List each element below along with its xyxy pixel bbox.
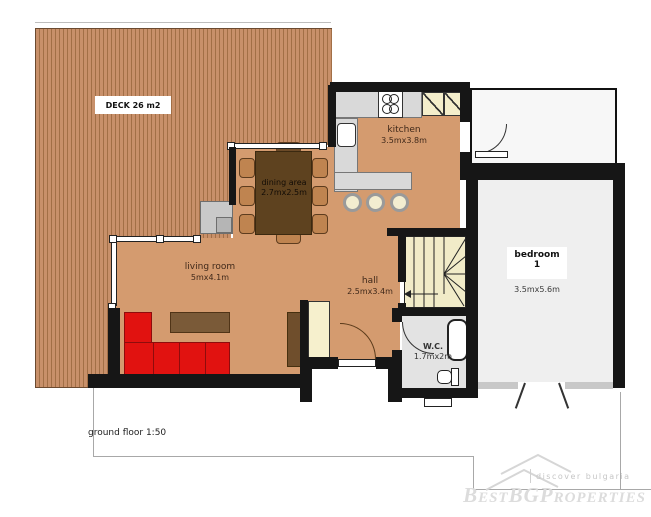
- deck-area: [35, 238, 113, 388]
- window-post: [109, 235, 117, 243]
- sofa: [124, 342, 230, 375]
- sink-icon: [337, 123, 356, 147]
- wall: [300, 357, 312, 402]
- kitchen-counter: [334, 90, 380, 118]
- toilet-icon: [451, 368, 459, 386]
- toilet-icon: [437, 370, 452, 384]
- wall: [396, 308, 466, 316]
- dining-chair: [312, 214, 328, 234]
- wall: [460, 163, 625, 180]
- wall: [108, 308, 120, 376]
- living-room-label: living room 5mx4.1m: [160, 262, 260, 283]
- dining-chair: [239, 214, 255, 234]
- bedroom-number: 1: [507, 260, 567, 270]
- wall: [398, 230, 406, 282]
- staircase-treads: [404, 236, 466, 308]
- wall: [613, 180, 625, 388]
- corner-cabinet: [422, 92, 444, 116]
- door-leaf: [308, 301, 330, 361]
- wall: [328, 85, 336, 147]
- kitchen-label: kitchen 3.5mx3.8m: [368, 125, 440, 146]
- door-sill: [475, 151, 508, 158]
- terrace-outline-bottom: [93, 456, 474, 457]
- dining-label: dining area 2.7mx2.5m: [250, 178, 318, 198]
- hall-label: hall 2.5mx3.4m: [340, 276, 400, 297]
- wall: [392, 388, 478, 398]
- deck-label-text: DECK 26 m2: [106, 101, 161, 110]
- bedroom-sill: [565, 382, 613, 389]
- watermark-divider: [530, 469, 531, 483]
- entry-threshold: [338, 359, 376, 367]
- window-post: [319, 142, 327, 150]
- bedroom-label: bedroom: [507, 247, 567, 260]
- pergola-edge-line: [35, 22, 331, 23]
- floor-plan: DECK 26 m2 bedroom 1: [0, 0, 651, 517]
- bedroom-label-box: bedroom 1: [507, 247, 567, 279]
- wall: [330, 82, 470, 92]
- plan-scale-caption: ground floor 1:50: [88, 428, 166, 438]
- window-post: [156, 235, 164, 243]
- window-dining-deck: [233, 143, 323, 149]
- bar-stool: [343, 193, 362, 212]
- dining-chair: [239, 158, 255, 178]
- window-post: [193, 235, 201, 243]
- stair-direction-arrow: [404, 290, 411, 298]
- kitchen-counter: [402, 90, 422, 118]
- window-living-left: [111, 242, 117, 306]
- stove-icon: [378, 90, 403, 118]
- watermark-tagline: discover bulgaria: [536, 472, 631, 481]
- deck-area: [35, 28, 332, 145]
- deck-label: DECK 26 m2: [95, 96, 171, 114]
- wall: [312, 357, 338, 369]
- wc-step: [424, 398, 452, 407]
- bar-stool: [366, 193, 385, 212]
- bar-counter: [334, 172, 412, 190]
- fireplace-box-inner: [216, 217, 232, 233]
- wall: [460, 82, 470, 122]
- watermark-brand: BestBGProperties: [458, 483, 651, 508]
- bedroom-dims: 3.5mx5.6m: [507, 285, 567, 294]
- coffee-table: [170, 312, 230, 333]
- bedroom-sill: [478, 382, 518, 389]
- watermark: discover bulgaria BestBGProperties: [458, 445, 651, 513]
- wc-label: W.C. 1.7mx2m: [398, 342, 468, 362]
- wall: [88, 374, 300, 388]
- wall: [388, 357, 402, 402]
- bedroom-floor: [478, 180, 613, 384]
- wall: [466, 180, 478, 395]
- wall: [229, 147, 236, 205]
- wall: [392, 308, 402, 322]
- porch-floor: [312, 369, 388, 402]
- dining-chair: [312, 158, 328, 178]
- bar-stool: [390, 193, 409, 212]
- terrace-outline-left: [93, 388, 94, 457]
